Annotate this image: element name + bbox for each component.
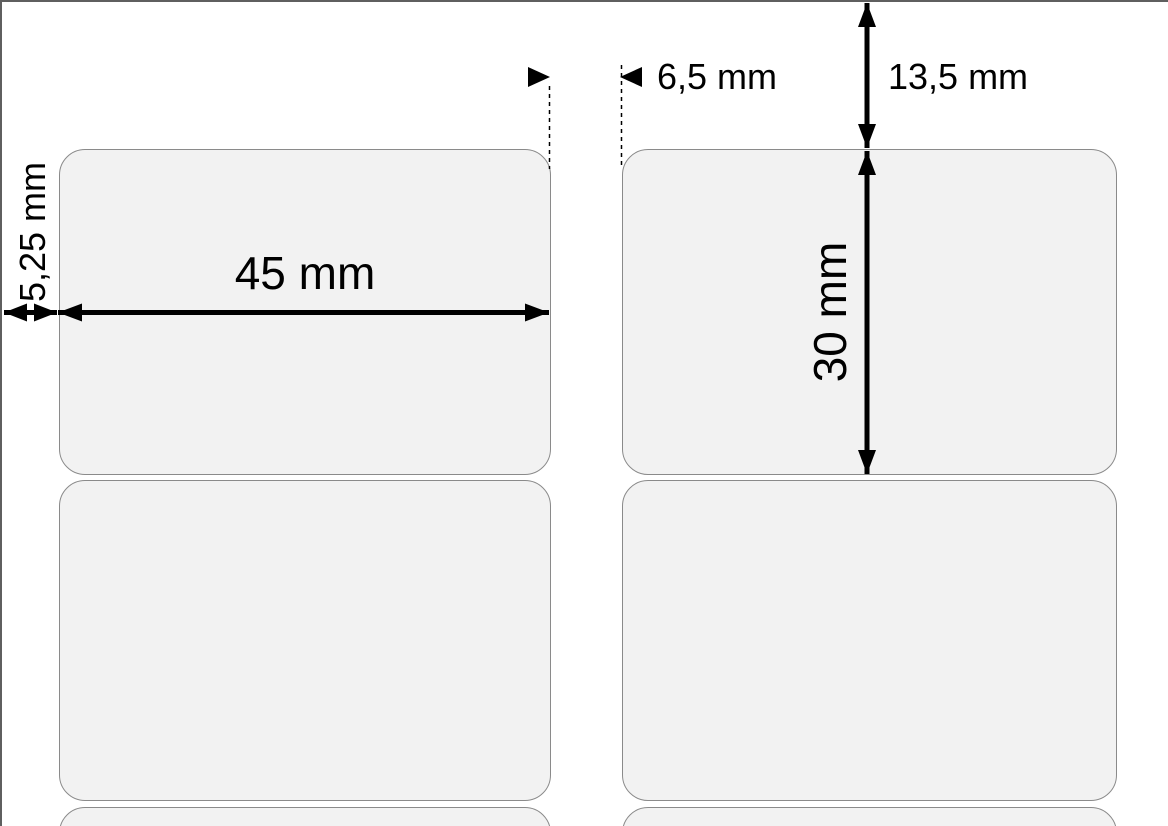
left-margin-dimension-arrow-icon — [4, 304, 57, 322]
left-margin-dimension-label: 5,25 mm — [15, 162, 51, 302]
gap-pointer-left-icon — [620, 67, 642, 87]
column-gap-extension-lines — [550, 65, 622, 169]
dimension-annotations-layer — [2, 2, 1168, 826]
top-margin-dimension-label: 13,5 mm — [888, 59, 1028, 95]
label-height-dimension-label: 30 mm — [807, 242, 853, 383]
gap-pointer-right-icon — [528, 67, 550, 87]
label-width-dimension-arrow-icon — [58, 304, 549, 322]
label-sheet-diagram: 5,25 mm 45 mm 6,5 mm 13,5 mm 30 mm — [0, 0, 1168, 826]
top-margin-dimension-arrow-icon — [858, 3, 876, 148]
column-gap-dimension-label: 6,5 mm — [657, 59, 777, 95]
label-width-dimension-label: 45 mm — [235, 250, 376, 296]
label-height-dimension-arrow-icon — [858, 151, 876, 474]
